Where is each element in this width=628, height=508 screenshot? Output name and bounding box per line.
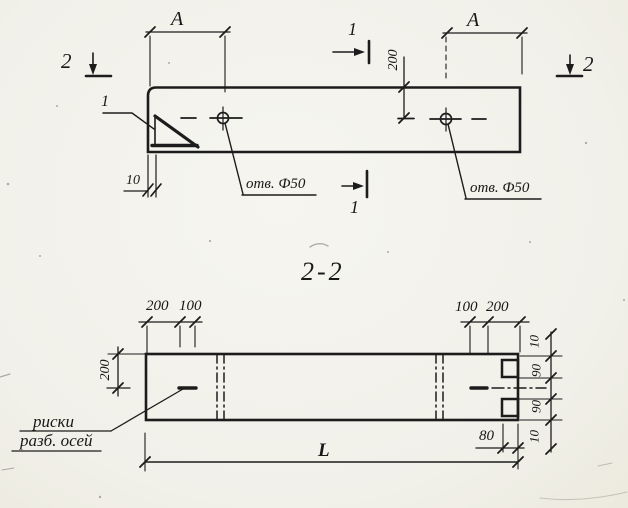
chain-10-top-label: 10 — [528, 332, 541, 352]
axis-note-line2: разб. осей — [20, 432, 93, 449]
dim-200-section — [108, 347, 146, 396]
axis-note-line1: риски — [33, 413, 74, 430]
holes-centerline — [181, 118, 486, 119]
dim-a-right — [442, 28, 527, 78]
section-title: 2-2 — [301, 259, 345, 285]
section-mark-2-right-label: 2 — [583, 54, 594, 75]
dim-200-right-label: 200 — [486, 300, 509, 315]
dim-a-right-label: A — [467, 10, 479, 30]
dim-200-section-label: 200 — [99, 354, 113, 386]
corner-triangle-detail — [152, 116, 198, 147]
technical-drawing-sheet: A A 200 1 1 2 2 1 10 отв. Ф50 отв. Ф50 2… — [0, 0, 628, 508]
section-mark-1-bottom-label: 1 — [350, 198, 359, 216]
chain-90-upper-label: 90 — [530, 361, 543, 381]
dim-a-left — [145, 27, 230, 92]
dim-200-left-label: 200 — [146, 299, 169, 314]
section-mark-2-left-label: 2 — [61, 51, 72, 72]
section-beam-outline — [146, 354, 518, 420]
section-mark-2-left — [86, 53, 111, 76]
dim-100-200-right — [461, 317, 529, 354]
dim-10-label: 10 — [126, 174, 140, 188]
dim-100-left-label: 100 — [179, 299, 202, 314]
chain-90-lower-label: 90 — [530, 397, 543, 417]
detail-callout-label: 1 — [101, 94, 109, 110]
section-mark-2-right — [557, 55, 582, 76]
dim-100-right-label: 100 — [455, 300, 478, 315]
dim-200-100-left — [139, 317, 202, 353]
dim-80-label: 80 — [479, 429, 494, 444]
dim-length-l — [140, 424, 523, 471]
chain-10-bottom-label: 10 — [528, 427, 541, 447]
top-view-beam-outline — [148, 88, 520, 153]
hole-label-left: отв. Ф50 — [246, 177, 305, 192]
hole-label-right: отв. Ф50 — [470, 181, 529, 196]
dim-length-label: L — [318, 441, 330, 460]
section-dashed-lines — [217, 354, 443, 420]
section-mark-1-bottom — [342, 171, 367, 197]
dim-200-top-label: 200 — [387, 44, 401, 76]
section-mark-1-top — [333, 41, 369, 63]
section-mark-1-top-label: 1 — [348, 20, 357, 38]
dim-a-left-label: A — [171, 9, 183, 29]
detail-callout-leader — [103, 113, 154, 129]
